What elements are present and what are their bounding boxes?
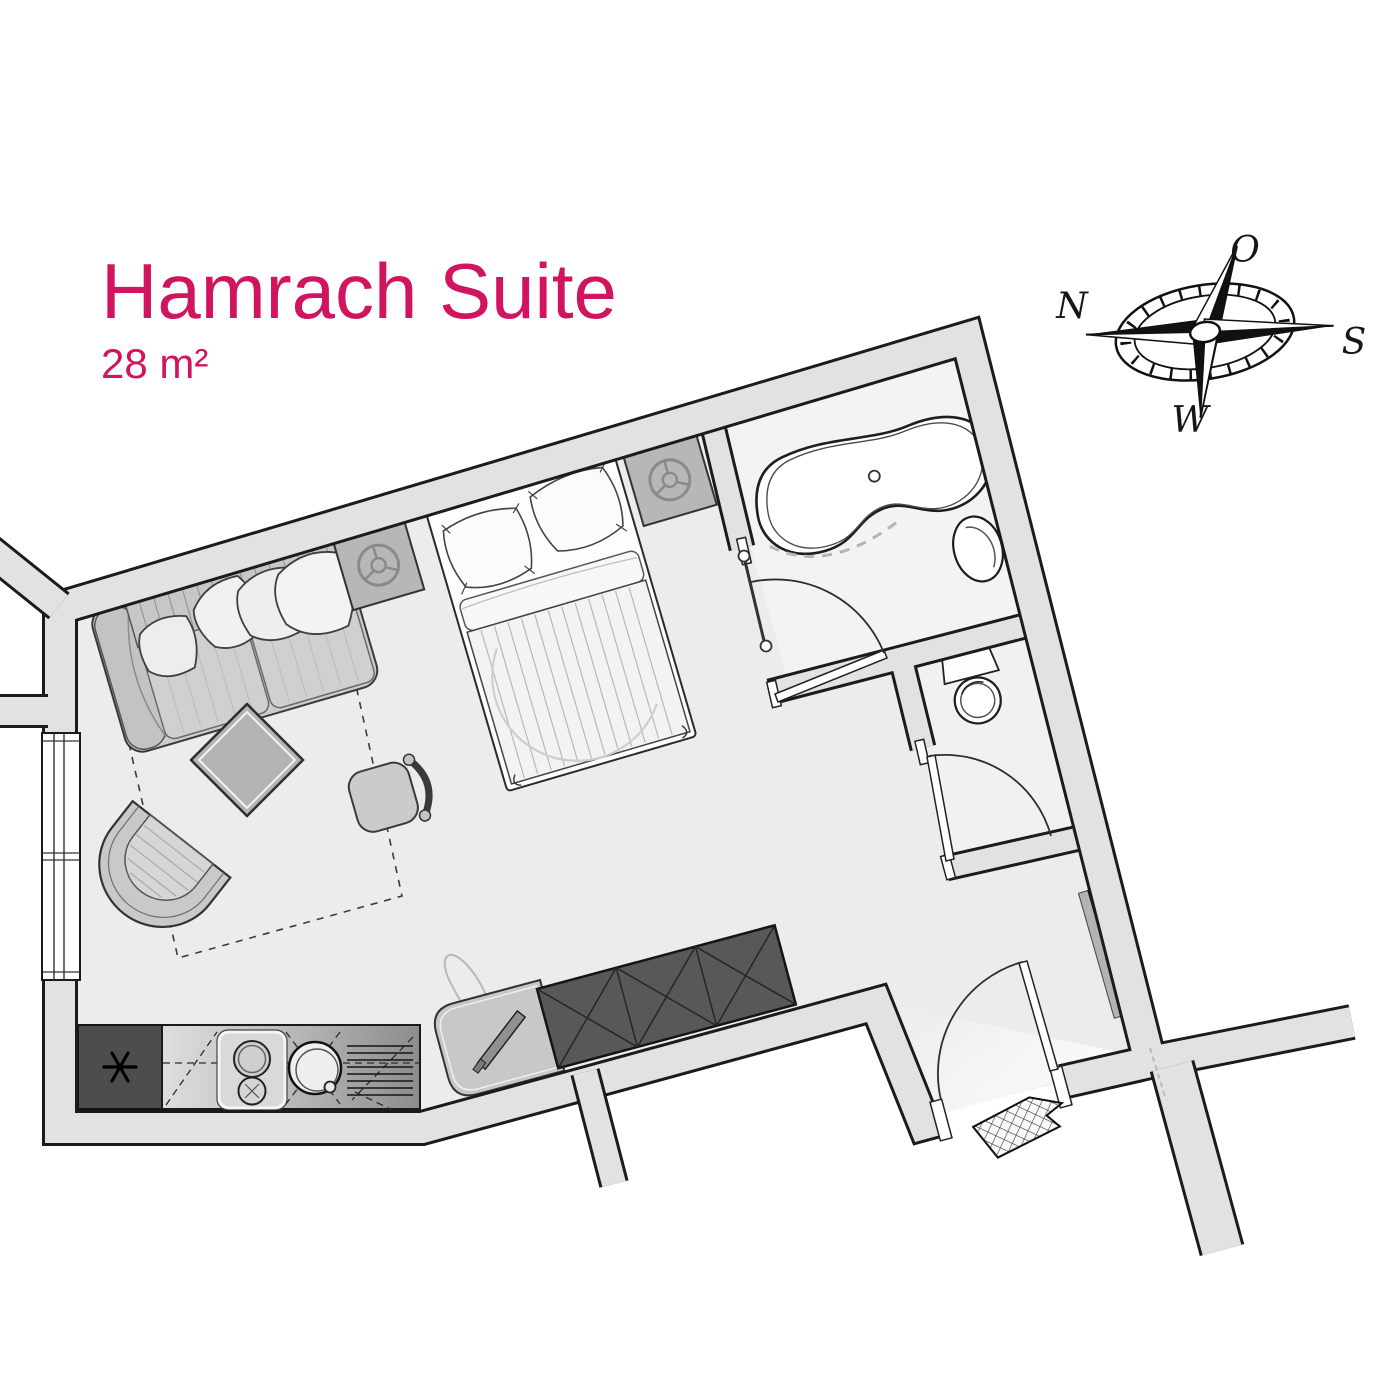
- compass-north-label: N: [1055, 286, 1089, 327]
- compass-west-label: W: [1171, 400, 1211, 441]
- stove: [217, 1030, 287, 1110]
- compass-south-label: S: [1342, 322, 1367, 363]
- compass-rose: N O S W: [1055, 230, 1366, 441]
- window: [42, 733, 80, 980]
- floorplan-drawing: N O S W: [0, 0, 1400, 1400]
- compass-east-label: O: [1230, 230, 1260, 271]
- sink: [289, 1042, 341, 1094]
- floorplan-page: Hamrach Suite 28 m²: [0, 0, 1400, 1400]
